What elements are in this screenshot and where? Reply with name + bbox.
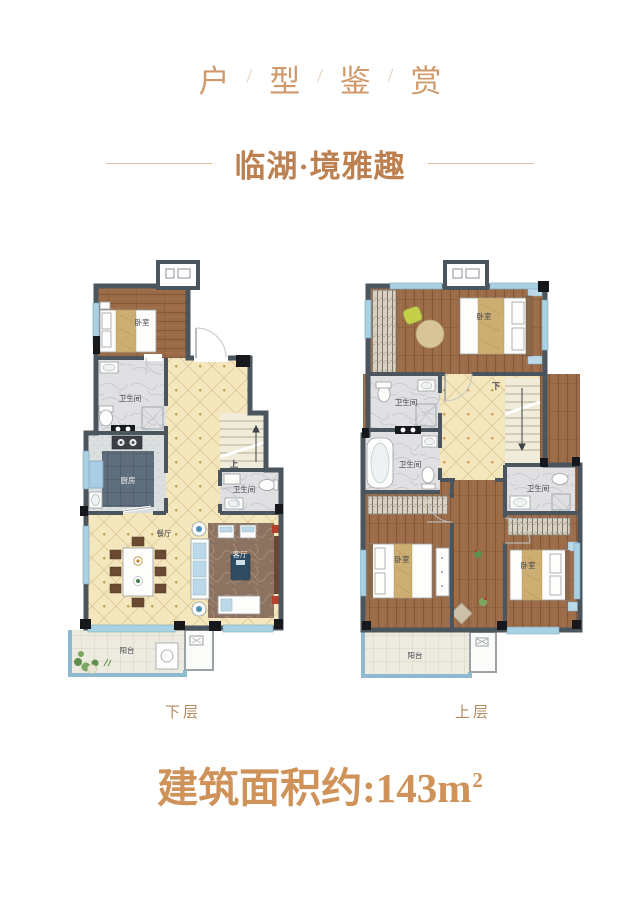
room-label-bedroom: 卧室	[135, 317, 150, 327]
title-char: 型	[269, 56, 300, 101]
room-label-bathroom2: 卫生间	[233, 484, 256, 494]
room-label-bedroom3: 卧室	[521, 560, 536, 570]
title-separator: /	[317, 65, 323, 88]
subtitle-line-left	[106, 163, 212, 164]
bedroom3-furniture	[508, 518, 578, 611]
floor-plan-upper: 下	[360, 258, 585, 688]
title-char: 鉴	[340, 56, 371, 101]
stairs-up-label: 上	[230, 459, 239, 469]
wardrobe-icon	[508, 518, 570, 535]
room-label-bathroom3: 卫生间	[527, 483, 550, 493]
stairs-down-label: 下	[492, 381, 501, 391]
area-superscript: 2	[472, 768, 483, 792]
title-separator: /	[388, 65, 394, 88]
washer-icon	[156, 643, 178, 669]
room-label-living: 客厅	[233, 549, 248, 559]
room-label-balcony: 阳台	[120, 645, 135, 655]
subtitle: 临湖·境雅趣	[234, 141, 405, 186]
room-label-bathroom2: 卫生间	[399, 459, 422, 469]
room-label-dining: 餐厅	[157, 529, 172, 538]
subtitle-line-right	[428, 163, 534, 164]
title-char: 户	[199, 56, 230, 101]
room-label-bathroom1: 卫生间	[395, 397, 418, 407]
area-text: 建筑面积约:143m2	[0, 754, 640, 814]
subtitle-row: 临湖·境雅趣	[0, 141, 640, 186]
room-label-bathroom1: 卫生间	[119, 393, 142, 403]
caption-lower-floor: 下层	[138, 701, 228, 722]
wardrobe-icon	[372, 290, 396, 374]
floor-plan-lower: 上	[68, 258, 298, 688]
room-label-bedroom-master: 卧室	[477, 311, 492, 321]
wardrobe-icon	[368, 496, 448, 514]
page-title: 户 / 型 / 鉴 / 赏	[0, 56, 640, 101]
title-char: 赏	[410, 56, 441, 101]
area-value: 建筑面积约:143m	[157, 765, 471, 811]
room-label-kitchen: 厨房	[121, 475, 136, 485]
room-label-balcony: 阳台	[408, 650, 423, 660]
room-label-bedroom2: 卧室	[395, 554, 410, 564]
fridge-icon	[89, 461, 103, 488]
caption-upper-floor: 上层	[428, 701, 518, 722]
poster-page: 户 / 型 / 鉴 / 赏 临湖·境雅趣	[0, 0, 640, 920]
title-separator: /	[247, 65, 253, 88]
